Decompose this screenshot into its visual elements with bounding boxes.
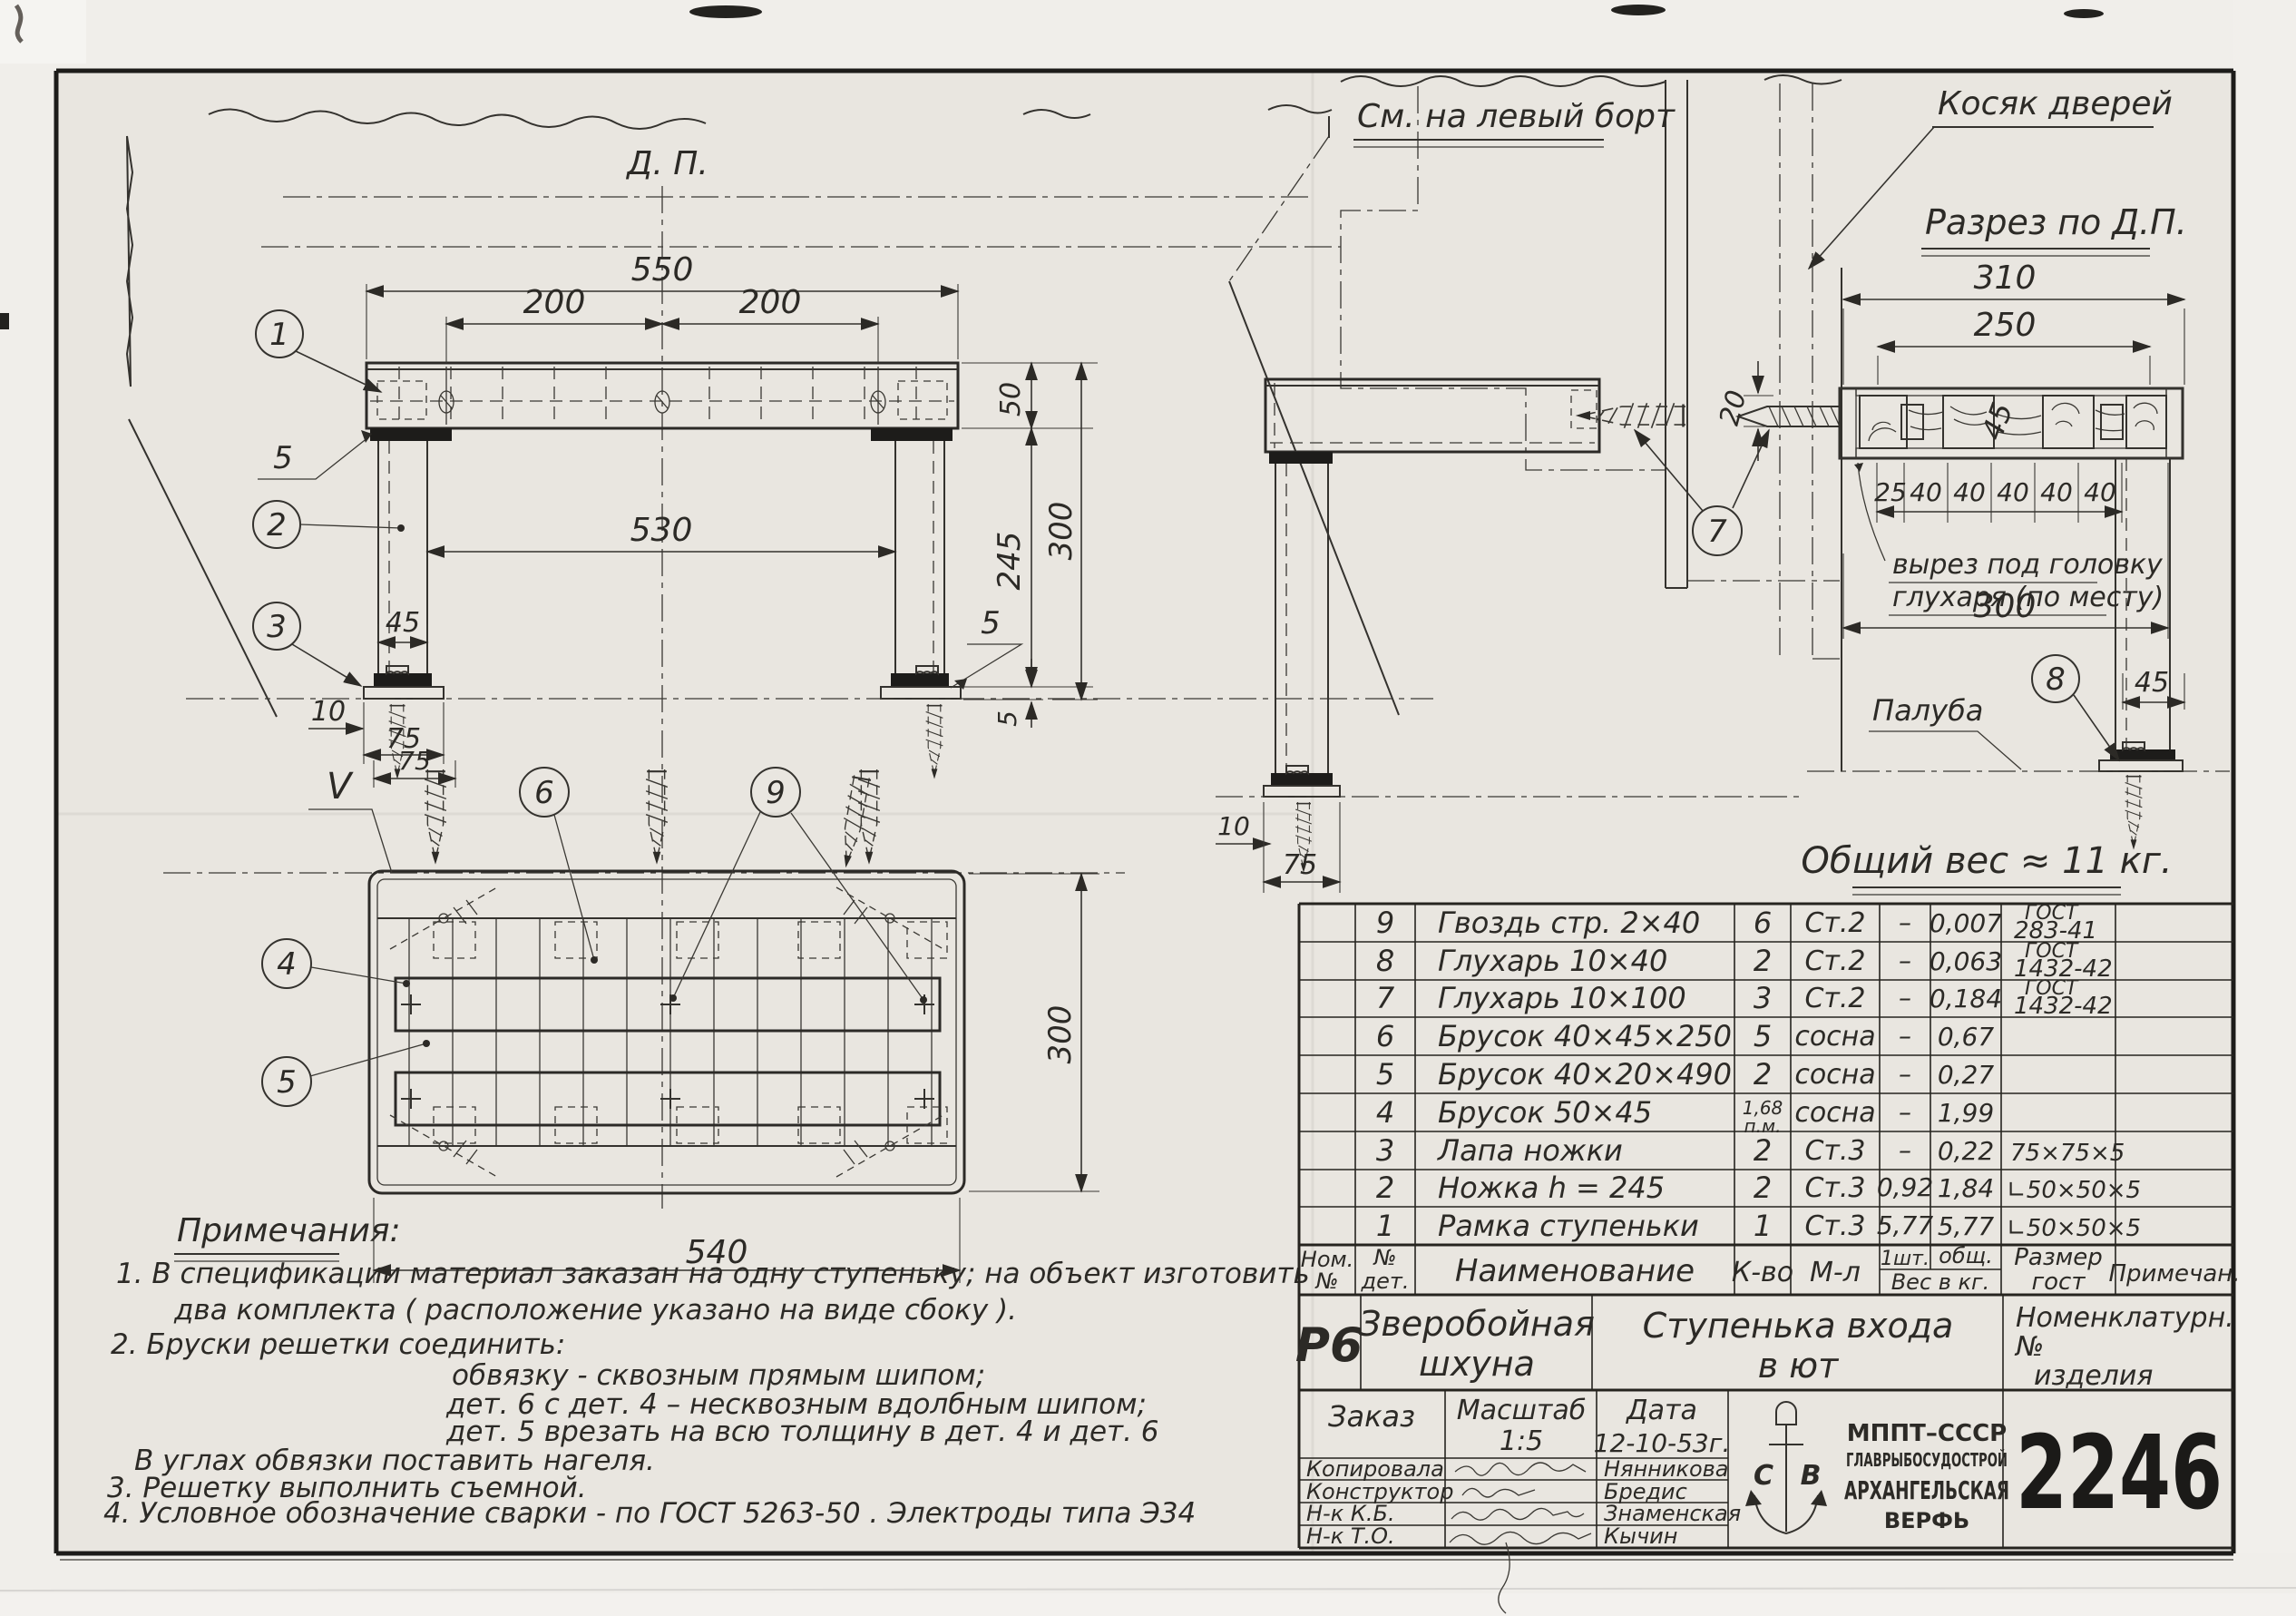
svg-text:5,77: 5,77 xyxy=(1938,1211,1995,1241)
cell-name: Гвоздь стр. 2×40 xyxy=(1438,906,1700,940)
org-line-3: АРХАНГЕЛЬСКАЯ xyxy=(1844,1475,2009,1505)
cell-mat: Ст.2 xyxy=(1804,907,1865,939)
svg-text:1: 1 xyxy=(1754,1209,1772,1243)
svg-text:изделия: изделия xyxy=(2034,1360,2153,1392)
dim-200-right: 200 xyxy=(739,284,802,321)
svg-text:2: 2 xyxy=(1754,1170,1772,1205)
weight-note: Общий вес ≈ 11 кг. xyxy=(1801,840,2172,895)
dim-5-pad-right: 5 xyxy=(981,605,1001,642)
svg-text:–: – xyxy=(1899,1135,1911,1165)
cell-w1: – xyxy=(1899,907,1911,937)
dim-5-gap: 5 xyxy=(992,710,1022,727)
svg-text:1: 1 xyxy=(1376,1209,1394,1243)
note-2: 2. Бруски решетки соединить: xyxy=(111,1328,565,1361)
dim-span-300: 300 xyxy=(1974,588,2037,625)
svg-text:–: – xyxy=(1899,983,1911,1013)
dim-245: 245 xyxy=(992,532,1028,591)
note-1b: два комплекта ( расположение указано на … xyxy=(173,1294,1017,1327)
svg-text:1шт.: 1шт. xyxy=(1881,1248,1930,1270)
dim-seg-40a: 40 xyxy=(1910,477,1942,507)
svg-text:75×75×5: 75×75×5 xyxy=(2010,1140,2125,1167)
svg-text:Глухарь 10×40: Глухарь 10×40 xyxy=(1438,944,1667,978)
dim-plan-300: 300 xyxy=(1042,1005,1079,1064)
dim-seg-40d: 40 xyxy=(2040,477,2073,507)
org-line-1: МППТ–СССР xyxy=(1847,1420,2007,1447)
svg-text:0,27: 0,27 xyxy=(1938,1060,1995,1090)
svg-text:№: № xyxy=(2014,1331,2044,1363)
svg-text:№: № xyxy=(1373,1245,1397,1270)
cell-qty: 6 xyxy=(1754,906,1772,940)
svg-text:общ.: общ. xyxy=(1939,1243,1993,1268)
dim-200-left: 200 xyxy=(523,284,586,321)
callout-3: 3 xyxy=(267,609,287,645)
dim-side-10: 10 xyxy=(1217,811,1250,841)
svg-text:Брусок 40×45×250: Брусок 40×45×250 xyxy=(1438,1019,1732,1053)
svg-text:Н-к К.Б.: Н-к К.Б. xyxy=(1306,1501,1395,1526)
svg-text:М-л: М-л xyxy=(1810,1257,1861,1288)
svg-text:сосна: сосна xyxy=(1794,1059,1875,1091)
dim-side-75: 75 xyxy=(1283,849,1317,881)
dim-310: 310 xyxy=(1974,260,2037,297)
cutout-label-1: вырез под головку xyxy=(1892,549,2164,581)
svg-text:∟50×50×5: ∟50×50×5 xyxy=(2007,1177,2141,1204)
v-mark: V xyxy=(327,766,354,808)
series-code: Р6 xyxy=(1295,1318,1363,1373)
svg-text:5: 5 xyxy=(1376,1057,1394,1092)
logo-letter-left: С xyxy=(1754,1460,1773,1492)
svg-text:3: 3 xyxy=(1754,981,1772,1015)
drawing-sheet: Д. П. xyxy=(0,0,2296,1616)
svg-text:Наименование: Наименование xyxy=(1455,1253,1695,1289)
spec-row: 6 Брусок 40×45×250 5 сосна – 0,67 xyxy=(1376,1019,1995,1053)
scale-label: Масштаб xyxy=(1457,1395,1587,1426)
see-left-board-label: См. на левый борт xyxy=(1357,98,1676,135)
svg-text:гост: гост xyxy=(2031,1268,2086,1296)
svg-text:1,99: 1,99 xyxy=(1938,1098,1994,1128)
svg-text:Ст.3: Ст.3 xyxy=(1804,1172,1865,1204)
svg-text:Н-к Т.О.: Н-к Т.О. xyxy=(1306,1523,1395,1549)
dim-seg-40c: 40 xyxy=(1997,477,2029,507)
svg-text:Размер: Размер xyxy=(2014,1244,2103,1271)
note-2c: дет. 5 врезать на всю толщину в дет. 4 и… xyxy=(445,1415,1159,1448)
section-title: Разрез по Д.П. xyxy=(1925,202,2187,242)
svg-text:8: 8 xyxy=(1376,944,1394,978)
sig-role: Копировала xyxy=(1306,1456,1444,1482)
svg-text:2: 2 xyxy=(1754,1133,1772,1168)
note-4: 4. Условное обозначение сварки - по ГОСТ… xyxy=(103,1497,1196,1530)
svg-text:4: 4 xyxy=(1376,1095,1394,1130)
dim-550: 550 xyxy=(631,251,694,289)
svg-text:∟50×50×5: ∟50×50×5 xyxy=(2007,1215,2141,1242)
date-value: 12-10-53г. xyxy=(1594,1428,1731,1458)
dim-seg-40e: 40 xyxy=(2084,477,2116,507)
logo-letter-right: В xyxy=(1801,1460,1822,1492)
svg-text:Рамка ступеньки: Рамка ступеньки xyxy=(1438,1209,1699,1243)
dim-10: 10 xyxy=(311,696,346,728)
svg-text:0,92: 0,92 xyxy=(1877,1172,1933,1202)
svg-text:Ст.2: Ст.2 xyxy=(1804,983,1865,1014)
door-jamb-label: Косяк дверей xyxy=(1938,85,2173,122)
svg-text:5,77: 5,77 xyxy=(1877,1210,1934,1240)
callout-1: 1 xyxy=(269,317,289,353)
svg-text:Примечан.: Примечан. xyxy=(2108,1260,2240,1288)
svg-text:Вес в кг.: Вес в кг. xyxy=(1891,1269,1990,1295)
svg-text:–: – xyxy=(1899,945,1911,975)
svg-text:Знаменская: Знаменская xyxy=(1604,1501,1741,1526)
note-1a: 1. В спецификации материал заказан на од… xyxy=(116,1258,1310,1290)
svg-text:Глухарь 10×100: Глухарь 10×100 xyxy=(1438,981,1686,1015)
callout-8: 8 xyxy=(2046,661,2066,698)
dim-250: 250 xyxy=(1974,307,2037,344)
dim-45: 45 xyxy=(386,607,420,639)
svg-text:0,22: 0,22 xyxy=(1938,1136,1994,1166)
dim-50: 50 xyxy=(995,382,1027,416)
dim-530: 530 xyxy=(630,512,693,549)
spec-row: 5 Брусок 40×20×490 2 сосна – 0,27 xyxy=(1376,1057,1995,1092)
dp-label: Д. П. xyxy=(625,145,708,182)
dim-seg-25: 25 xyxy=(1874,477,1907,507)
date-label: Дата xyxy=(1625,1395,1697,1426)
svg-text:–: – xyxy=(1899,1021,1911,1051)
svg-text:Ст.2: Ст.2 xyxy=(1804,945,1865,977)
order-label: Заказ xyxy=(1328,1399,1415,1434)
svg-text:2: 2 xyxy=(1754,1057,1772,1092)
svg-text:Брусок 40×20×490: Брусок 40×20×490 xyxy=(1438,1057,1732,1092)
callout-6: 6 xyxy=(534,775,554,811)
callout-9: 9 xyxy=(766,775,786,811)
svg-text:2: 2 xyxy=(1754,944,1772,978)
dim-300: 300 xyxy=(1043,502,1080,561)
sig-name: Нянникова xyxy=(1604,1456,1729,1482)
svg-text:–: – xyxy=(1899,1097,1911,1127)
svg-text:шхуна: шхуна xyxy=(1419,1344,1535,1384)
total-weight: Общий вес ≈ 11 кг. xyxy=(1801,840,2172,882)
part-title: Ступенька входа xyxy=(1643,1306,1954,1346)
callout-5: 5 xyxy=(277,1064,297,1101)
object-name: Зверобойная xyxy=(1359,1304,1595,1344)
svg-text:Кычин: Кычин xyxy=(1604,1523,1677,1549)
cell-det: 9 xyxy=(1376,906,1394,940)
nomenclature-label: Номенклатурн. xyxy=(2016,1302,2234,1334)
dim-plan-75: 75 xyxy=(398,746,431,776)
cell-w2: 0,007 xyxy=(1930,908,2002,938)
svg-text:–: – xyxy=(1899,1059,1911,1089)
svg-text:6: 6 xyxy=(1376,1019,1394,1053)
svg-text:Брусок 50×45: Брусок 50×45 xyxy=(1438,1095,1652,1130)
paper-background xyxy=(0,0,2296,1616)
svg-text:Лапа ножки: Лапа ножки xyxy=(1437,1133,1623,1168)
svg-text:К-во: К-во xyxy=(1732,1257,1793,1288)
svg-text:0,063: 0,063 xyxy=(1930,946,2002,976)
svg-text:дет.: дет. xyxy=(1361,1268,1410,1294)
dim-leg-45: 45 xyxy=(2135,667,2169,699)
svg-text:3: 3 xyxy=(1376,1133,1394,1168)
dim-5-pad-left: 5 xyxy=(273,440,293,476)
drawing-number: 2246 xyxy=(2016,1415,2223,1533)
svg-text:сосна: сосна xyxy=(1794,1021,1875,1053)
svg-text:1,84: 1,84 xyxy=(1938,1173,1994,1203)
dim-seg-40b: 40 xyxy=(1953,477,1986,507)
svg-text:0,184: 0,184 xyxy=(1930,984,2002,1014)
svg-text:1432-42: 1432-42 xyxy=(2014,993,2113,1020)
svg-text:Ст.3: Ст.3 xyxy=(1804,1210,1865,1242)
drawing-canvas: Д. П. xyxy=(0,0,2296,1616)
note-2a: обвязку - сквозным прямым шипом; xyxy=(452,1359,985,1392)
svg-text:Ст.3: Ст.3 xyxy=(1804,1135,1865,1167)
deck-label: Палуба xyxy=(1872,693,1983,728)
callout-4: 4 xyxy=(277,946,297,983)
scale-value: 1:5 xyxy=(1500,1425,1543,1457)
org-line-2: ГЛАВРЫБОСУДОСТРОЙ xyxy=(1846,1449,2008,1471)
svg-text:5: 5 xyxy=(1754,1019,1772,1053)
callout-2: 2 xyxy=(267,507,287,544)
callout-7: 7 xyxy=(1707,514,1727,550)
notes-title: Примечания: xyxy=(177,1212,401,1249)
svg-text:0,67: 0,67 xyxy=(1938,1022,1995,1052)
svg-text:сосна: сосна xyxy=(1794,1097,1875,1129)
svg-text:в ют: в ют xyxy=(1758,1346,1840,1386)
org-line-4: ВЕРФЬ xyxy=(1884,1508,1969,1533)
svg-text:Ножка h = 245: Ножка h = 245 xyxy=(1438,1170,1665,1205)
svg-text:2: 2 xyxy=(1376,1170,1394,1205)
svg-text:№: № xyxy=(1314,1268,1339,1294)
svg-text:7: 7 xyxy=(1376,981,1395,1015)
